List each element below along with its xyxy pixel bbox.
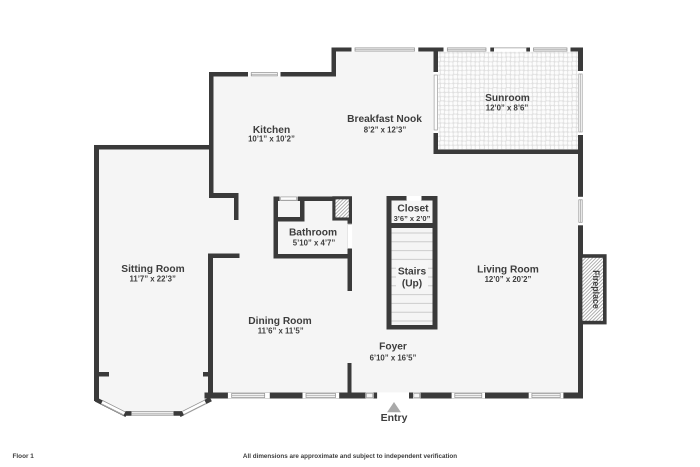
svg-text:Stairs: Stairs [398,266,427,277]
svg-text:(Up): (Up) [402,279,422,290]
svg-text:Foyer: Foyer [379,342,407,353]
svg-text:3’6” x 2’0”: 3’6” x 2’0” [394,214,431,223]
svg-text:Entry: Entry [381,412,408,424]
svg-text:Breakfast Nook: Breakfast Nook [347,114,422,125]
svg-text:5’10” x 4’7”: 5’10” x 4’7” [293,238,336,247]
svg-text:Bathroom: Bathroom [289,228,337,239]
svg-text:Fireplace: Fireplace [591,270,601,309]
svg-text:12’0” x 20’2”: 12’0” x 20’2” [485,275,532,284]
svg-text:Floor 1: Floor 1 [13,453,35,460]
svg-text:6’10” x 16’5”: 6’10” x 16’5” [370,353,417,362]
svg-text:12’0” x 8’6”: 12’0” x 8’6” [486,103,529,112]
svg-text:11’6” x 11’5”: 11’6” x 11’5” [258,327,304,336]
svg-text:Sitting Room: Sitting Room [121,264,184,275]
svg-text:11’7” x 22’3”: 11’7” x 22’3” [130,275,176,284]
svg-text:10’1” x 10’2”: 10’1” x 10’2” [248,135,295,144]
svg-text:All dimensions are approximate: All dimensions are approximate and subje… [243,453,457,460]
svg-text:8’2” x 12’3”: 8’2” x 12’3” [364,126,407,135]
svg-text:Closet: Closet [397,203,429,214]
